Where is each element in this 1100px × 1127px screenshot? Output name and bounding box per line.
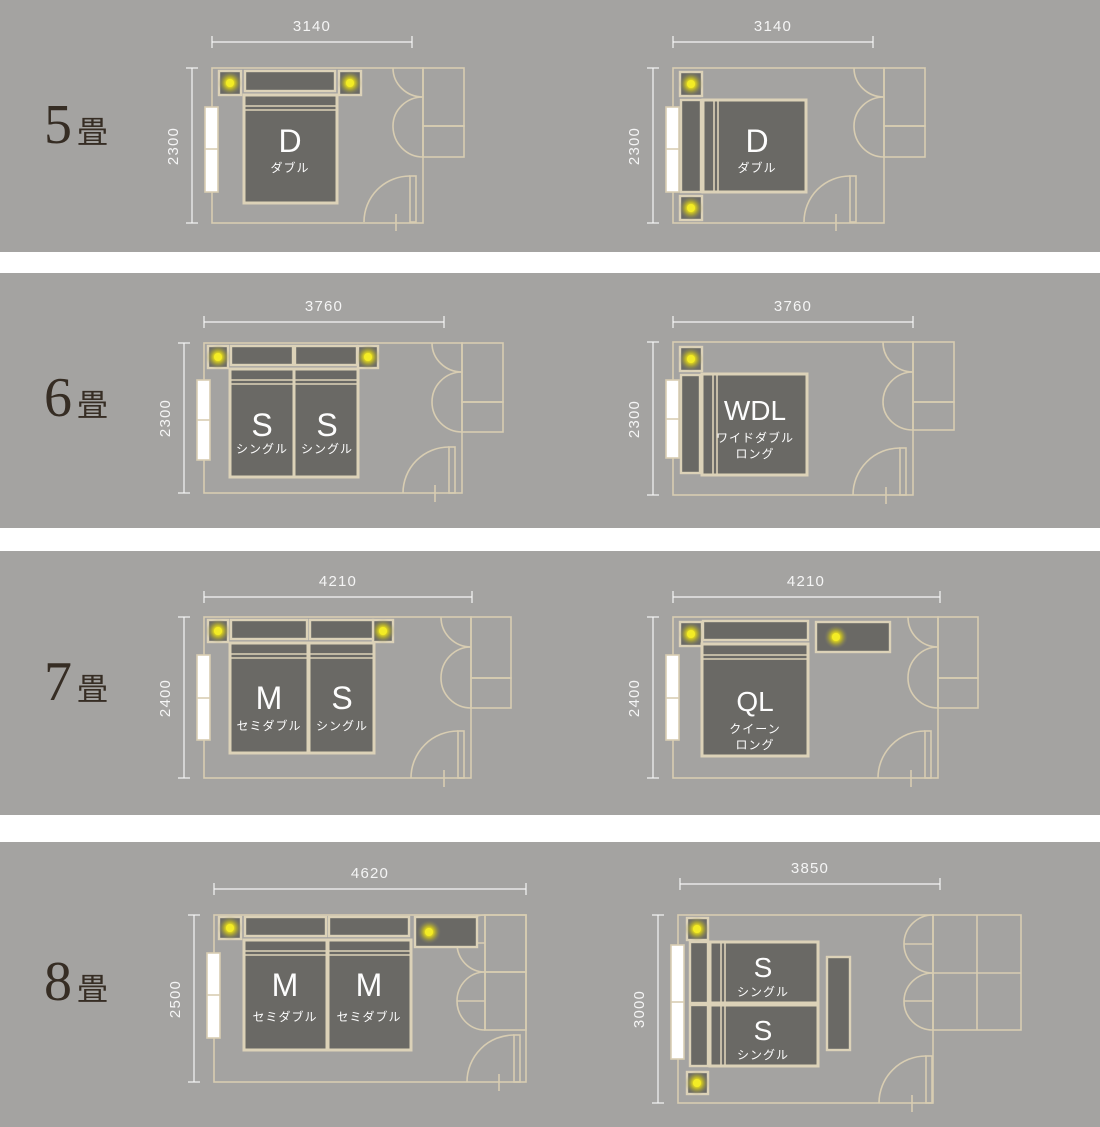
- window: [197, 380, 210, 460]
- headboard: [690, 1005, 708, 1066]
- width-value: 3760: [305, 298, 343, 315]
- bed-double: D ダブル: [681, 100, 806, 192]
- bed-type-label: セミダブル: [252, 1009, 317, 1024]
- bed-type-label: ワイドダブル: [716, 430, 794, 445]
- bed-single: S シングル: [294, 346, 358, 477]
- bed-code-label: S: [754, 952, 773, 983]
- headboard: [245, 71, 335, 91]
- row-band: [0, 842, 1100, 1127]
- bed-code-label: D: [278, 123, 301, 159]
- row-5jo: 5畳 3140: [0, 0, 1100, 252]
- nightstand: [218, 71, 242, 95]
- nightstand: [218, 916, 242, 940]
- bed-type-label: セミダブル: [236, 718, 301, 733]
- bed-code-label: S: [331, 680, 352, 716]
- headboard: [245, 917, 326, 936]
- bed-double: D ダブル: [244, 71, 337, 203]
- console-table: [415, 917, 477, 947]
- height-value: 2300: [157, 399, 174, 437]
- bed-code-label: WDL: [724, 395, 786, 426]
- bed-semidouble: M セミダブル: [230, 620, 308, 753]
- bed-type-label: シングル: [737, 1048, 789, 1062]
- nightstand: [679, 347, 703, 371]
- bed-code-label: D: [745, 123, 768, 159]
- bed-single: S シングル: [690, 942, 818, 1003]
- nightstand: [338, 71, 362, 95]
- bed-single: S シングル: [309, 620, 374, 753]
- height-value: 2500: [167, 980, 184, 1018]
- window: [207, 953, 220, 1038]
- nightstand: [679, 196, 703, 220]
- height-value: 3000: [631, 990, 648, 1028]
- headboard: [690, 942, 708, 1003]
- headboard: [681, 100, 701, 192]
- bed-layout-guide: 5畳 3140: [0, 0, 1100, 1127]
- window: [666, 655, 679, 740]
- headboard: [703, 621, 808, 640]
- bed-type-label: ロング: [735, 738, 774, 752]
- bed-code-label: M: [272, 967, 299, 1003]
- nightstand: [206, 345, 230, 369]
- width-value: 4620: [351, 865, 389, 882]
- headboard: [295, 346, 357, 365]
- bed-code-label: M: [356, 967, 383, 1003]
- bed-type-label: ダブル: [270, 160, 309, 175]
- window: [197, 655, 210, 740]
- console-table: [816, 622, 890, 652]
- window: [666, 107, 679, 192]
- window: [666, 380, 679, 458]
- bed-type-label: シングル: [301, 442, 353, 456]
- nightstand: [679, 72, 703, 96]
- bed-type-label: クイーン: [729, 722, 780, 736]
- nightstand: [685, 917, 709, 941]
- height-value: 2400: [157, 679, 174, 717]
- headboard: [310, 620, 373, 639]
- bed-code-label: S: [316, 407, 337, 443]
- height-value: 2400: [626, 679, 643, 717]
- width-value: 3140: [293, 18, 331, 35]
- bed-code-label: M: [256, 680, 283, 716]
- bed-single: S シングル: [230, 346, 294, 477]
- layout-diagram: 5畳 3140: [0, 0, 1100, 1127]
- nightstand: [371, 619, 395, 643]
- row-6jo: 6畳 3760: [0, 273, 1100, 528]
- height-value: 2300: [626, 400, 643, 438]
- width-value: 3760: [774, 298, 812, 315]
- headboard: [231, 346, 293, 365]
- bed-type-label: ロング: [735, 447, 774, 461]
- bed-code-label: S: [754, 1015, 773, 1046]
- nightstand: [356, 345, 380, 369]
- nightstand: [679, 622, 703, 646]
- width-value: 3140: [754, 18, 792, 35]
- height-value: 2300: [165, 127, 182, 165]
- dresser: [827, 957, 850, 1050]
- window: [205, 107, 218, 192]
- bed-semidouble: M セミダブル: [328, 917, 411, 1050]
- width-value: 4210: [319, 573, 357, 590]
- headboard: [231, 620, 307, 639]
- bed-type-label: シングル: [737, 985, 789, 999]
- window: [671, 945, 684, 1059]
- headboard: [329, 917, 409, 936]
- nightstand: [206, 619, 230, 643]
- width-value: 4210: [787, 573, 825, 590]
- row-band: [0, 0, 1100, 252]
- row-8jo: 8畳: [0, 842, 1100, 1127]
- bed-type-label: シングル: [316, 719, 368, 733]
- bed-type-label: シングル: [236, 442, 288, 456]
- nightstand: [685, 1071, 709, 1095]
- bed-type-label: ダブル: [737, 160, 776, 175]
- bed-code-label: QL: [736, 686, 773, 717]
- width-value: 3850: [791, 860, 829, 877]
- bed-wide-double-long: WDL ワイドダブル ロング: [681, 374, 807, 475]
- headboard: [681, 375, 700, 473]
- bed-single: S シングル: [690, 1005, 818, 1066]
- bed-code-label: S: [251, 407, 272, 443]
- bed-type-label: セミダブル: [336, 1009, 401, 1024]
- height-value: 2300: [626, 127, 643, 165]
- bed-semidouble: M セミダブル: [244, 917, 327, 1050]
- row-7jo: 7畳 4210: [0, 551, 1100, 815]
